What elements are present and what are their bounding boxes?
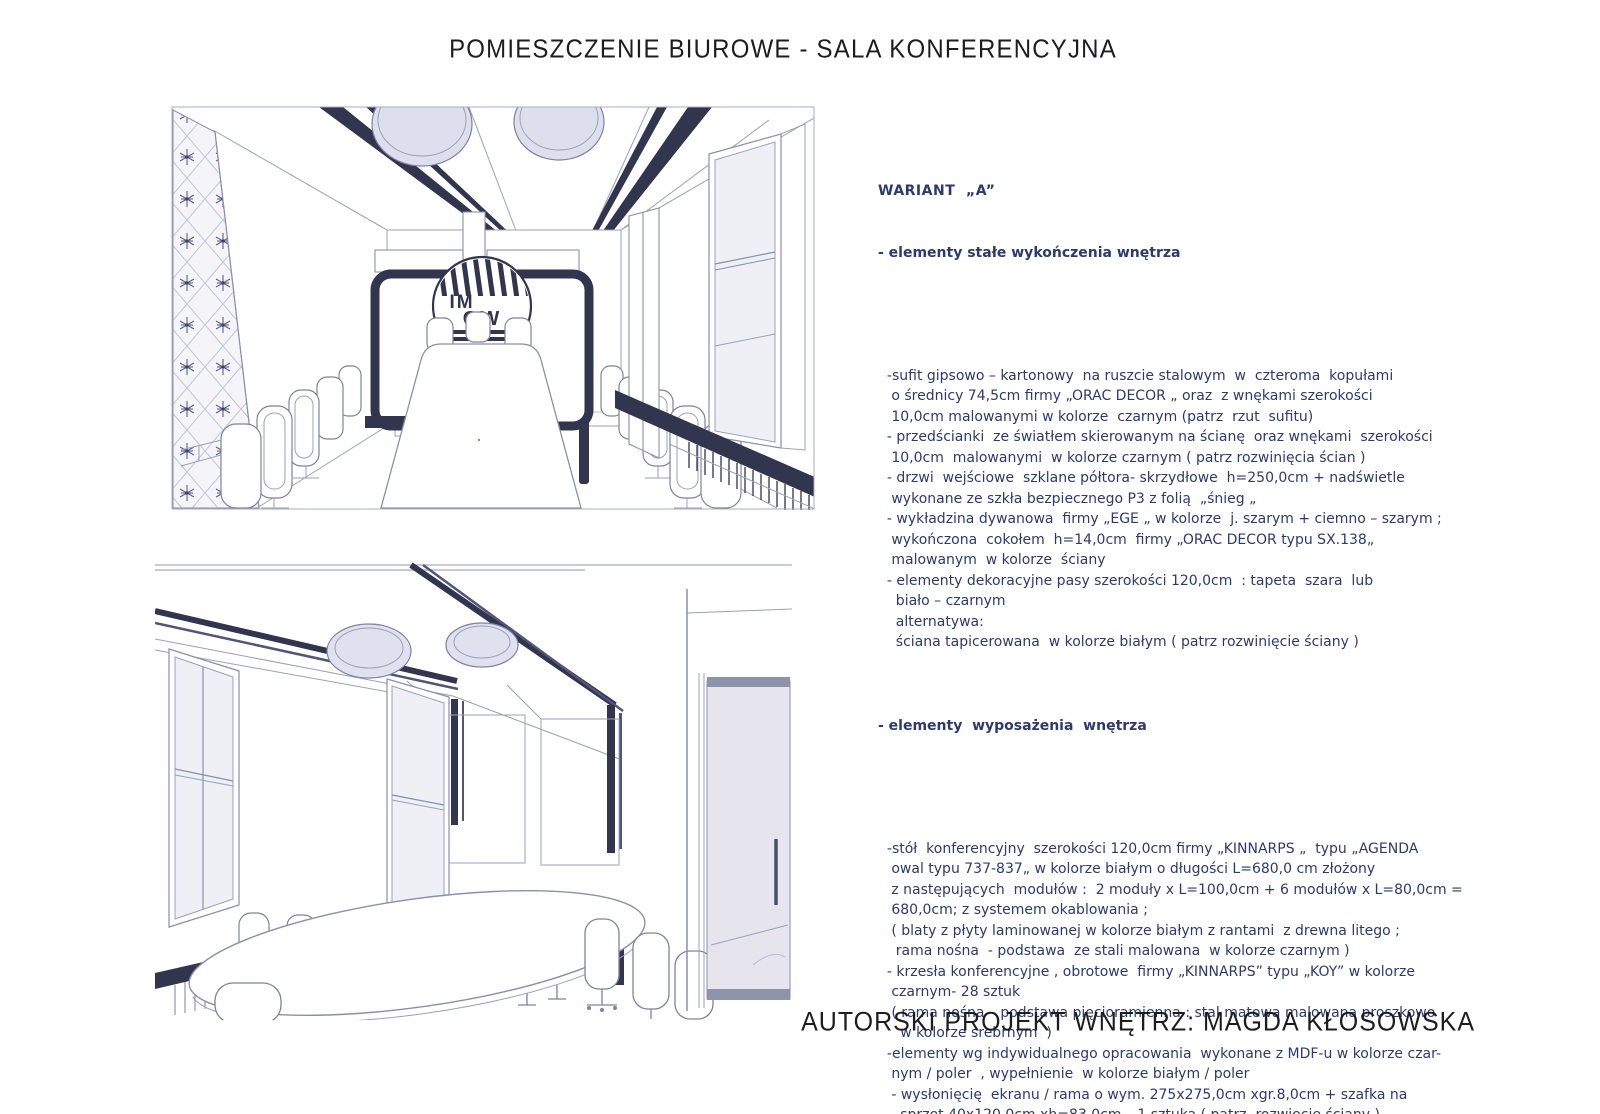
spec-line: 10,0cm malowanymi w kolorze czarnym (pat… xyxy=(878,407,1488,428)
finishes-heading: - elementy stałe wykończenia wnętrza xyxy=(878,243,1488,264)
spec-line: - krzesła konferencyjne , obrotowe firmy… xyxy=(878,962,1488,983)
spec-line: - drzwi wejściowe szklane półtora- skrzy… xyxy=(878,468,1488,489)
spec-line: - wysłonięcię ekranu / rama o wym. 275x2… xyxy=(878,1085,1488,1106)
spec-line: wykonane ze szkła bezpiecznego P3 z foli… xyxy=(878,489,1488,510)
spec-line: -sufit gipsowo – kartonowy na ruszcie st… xyxy=(878,366,1488,387)
spec-line: nym / poler , wypełnienie w kolorze biał… xyxy=(878,1064,1488,1085)
presentation-board: POMIESZCZENIE BIUROWE - SALA KONFERENCYJ… xyxy=(0,0,1600,1114)
furnishings-lines: -stół konferencyjny szerokości 120,0cm f… xyxy=(878,777,1488,1114)
spec-line: z następujących modułów : 2 moduły x L=1… xyxy=(878,880,1488,901)
spec-line: czarnym- 28 sztuk xyxy=(878,982,1488,1003)
author-credit: AUTORSKI PROJEKT WNĘTRZ: MAGDA KŁOSOWSKA xyxy=(801,1007,1475,1038)
spec-line: - elementy dekoracyjne pasy szerokości 1… xyxy=(878,571,1488,592)
specification-text: WARIANT „A” - elementy stałe wykończenia… xyxy=(878,140,1488,1114)
spec-line: - wykładzina dywanowa firmy „EGE „ w kol… xyxy=(878,509,1488,530)
spec-line: -stół konferencyjny szerokości 120,0cm f… xyxy=(878,839,1488,860)
window-1 xyxy=(169,649,239,927)
ceiling-domes xyxy=(327,623,518,678)
spec-line: ściana tapicerowana w kolorze białym ( p… xyxy=(878,632,1488,653)
variant-heading: WARIANT „A” xyxy=(878,181,1488,202)
sketch-side-perspective xyxy=(155,553,792,1020)
finishes-lines: -sufit gipsowo – kartonowy na ruszcie st… xyxy=(878,304,1488,653)
window-2 xyxy=(387,679,449,915)
spec-line: biało – czarnym xyxy=(878,591,1488,612)
spec-line: o średnicy 74,5cm firmy „ORAC DECOR „ or… xyxy=(878,386,1488,407)
spec-line: sprzęt 40x120,0cm xh=83,0cm – 1 sztuka (… xyxy=(878,1105,1488,1114)
spec-line: owal typu 737-837„ w kolorze białym o dł… xyxy=(878,859,1488,880)
spec-line: rama nośna - podstawa ze stali malowana … xyxy=(878,941,1488,962)
spec-line: alternatywa: xyxy=(878,612,1488,633)
spec-line: -elementy wg indywidualnego opracowania … xyxy=(878,1044,1488,1065)
ceiling-dome xyxy=(372,94,604,166)
sketch-front-perspective: IM GW xyxy=(169,94,817,514)
spec-line: ( blaty z płyty laminowanej w kolorze bi… xyxy=(878,921,1488,942)
door-panel xyxy=(687,589,790,1011)
spec-line: malowanym w kolorze ściany xyxy=(878,550,1488,571)
spec-line: 10,0cm malowanymi w kolorze czarnym ( pa… xyxy=(878,448,1488,469)
right-wall-window xyxy=(709,124,805,450)
spec-line: - przedścianki ze światłem skierowanym n… xyxy=(878,427,1488,448)
wall-niches xyxy=(445,715,619,865)
spec-line: 680,0cm; z systemem okablowania ; xyxy=(878,900,1488,921)
page-title: POMIESZCZENIE BIUROWE - SALA KONFERENCYJ… xyxy=(0,35,1566,65)
spec-line: wykończona cokołem h=14,0cm firmy „ORAC … xyxy=(878,530,1488,551)
top-border xyxy=(155,565,792,570)
furnishings-heading: - elementy wyposażenia wnętrza xyxy=(878,716,1488,737)
